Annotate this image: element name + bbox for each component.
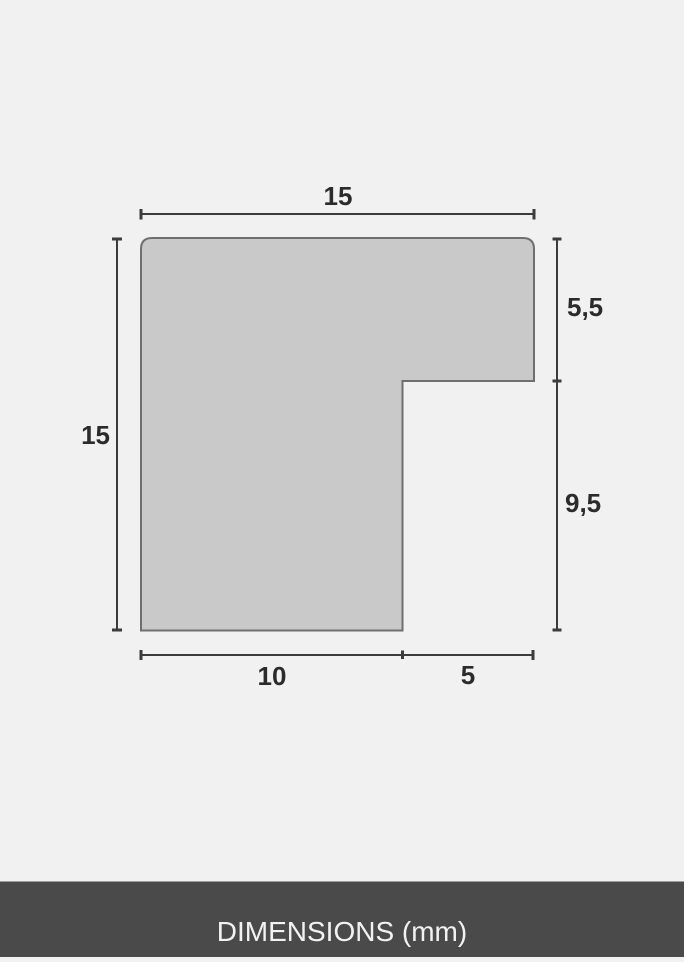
svg-text:9,5: 9,5 <box>565 488 601 518</box>
svg-text:10: 10 <box>258 661 287 691</box>
svg-text:15: 15 <box>324 181 353 211</box>
svg-text:15: 15 <box>81 420 110 450</box>
svg-text:DIMENSIONS (mm): DIMENSIONS (mm) <box>217 916 467 947</box>
svg-text:5: 5 <box>461 660 475 690</box>
svg-text:5,5: 5,5 <box>567 292 603 322</box>
